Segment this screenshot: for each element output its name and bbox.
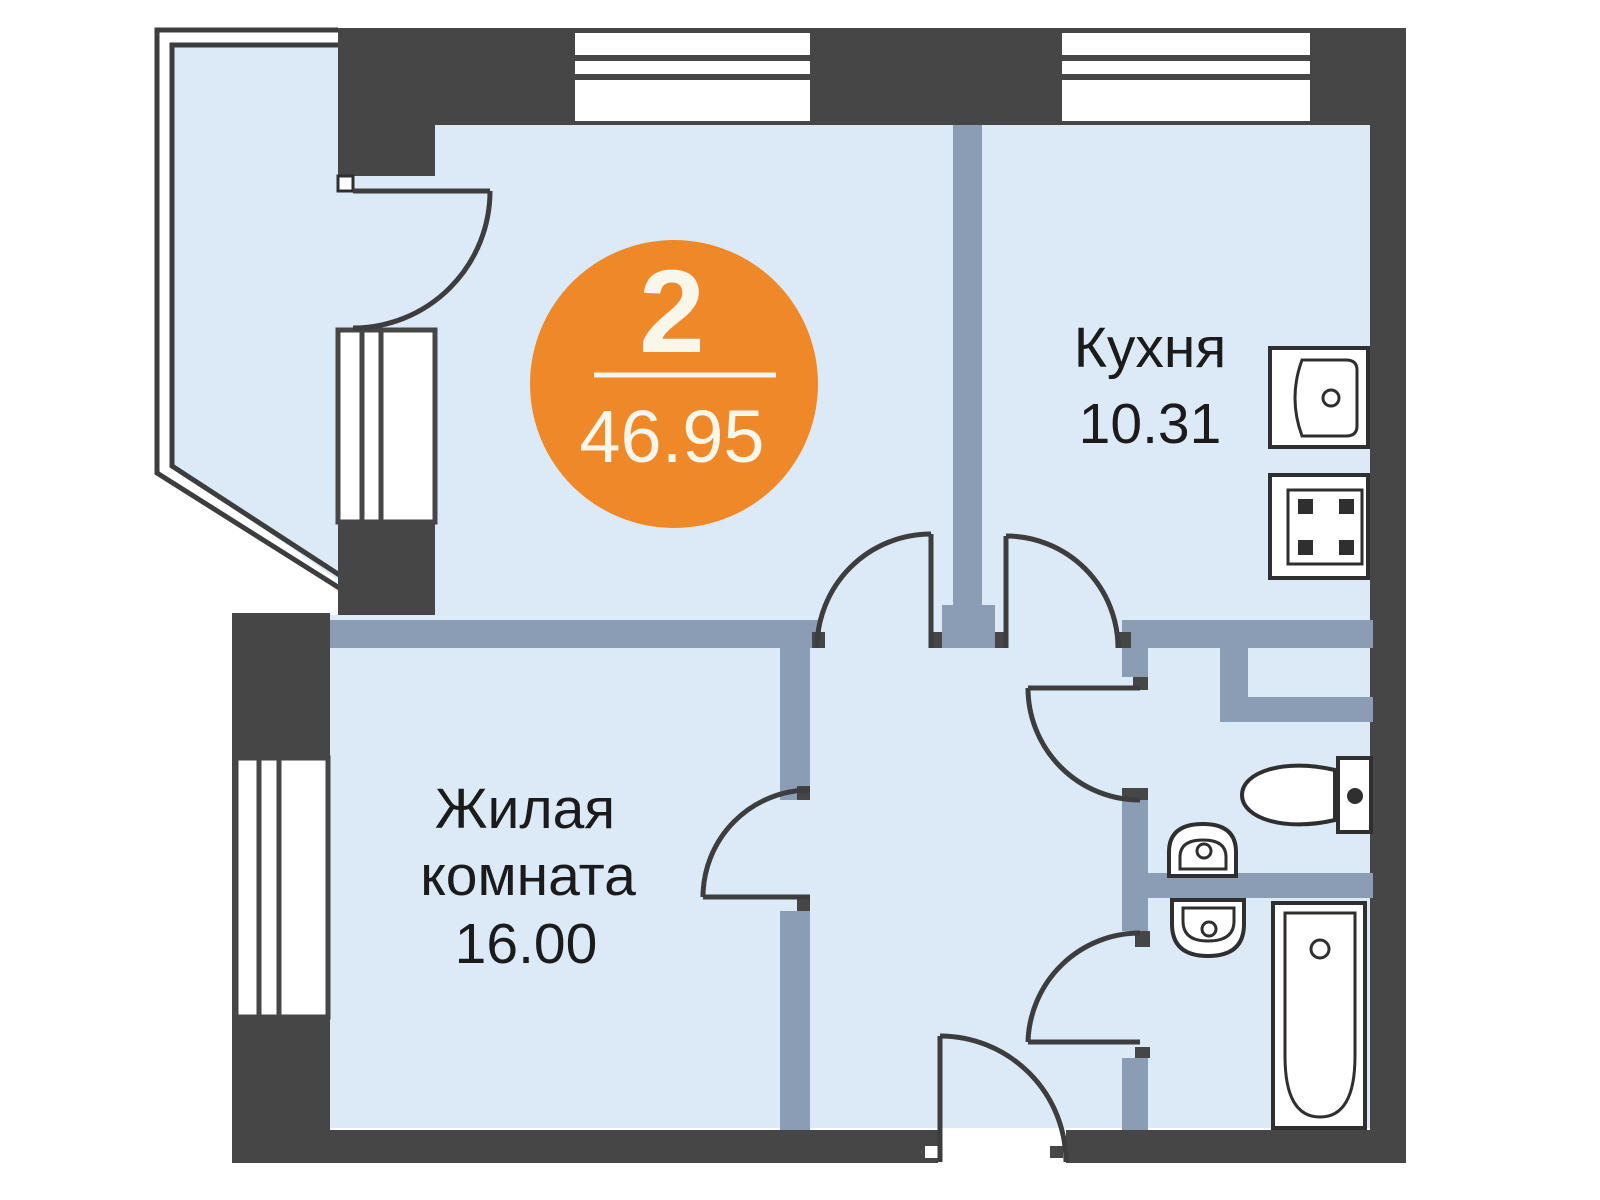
kitchen-label: Кухня bbox=[1074, 316, 1227, 380]
bathtub bbox=[1273, 903, 1365, 1128]
washbasin-wc bbox=[1169, 824, 1236, 876]
shaft-wall-vertical bbox=[1220, 648, 1248, 722]
floor-plan: 2 46.95 Кухня 10.31 Жилая комната 16.00 bbox=[0, 0, 1600, 1200]
washbasin-bath bbox=[1172, 900, 1244, 956]
hall-bath-wall-c bbox=[1122, 1058, 1148, 1130]
apartment-badge: 2 46.95 bbox=[530, 240, 818, 528]
badge-rooms-count: 2 bbox=[639, 246, 705, 378]
window-top-right bbox=[1062, 33, 1310, 121]
right-wall bbox=[1370, 28, 1406, 1163]
living-room-area-value: 16.00 bbox=[455, 912, 598, 976]
living-side-wall-top bbox=[780, 648, 810, 800]
bottom-wall-left bbox=[232, 1130, 938, 1163]
window-left bbox=[236, 758, 328, 1017]
entrance-jamb-right bbox=[1050, 1146, 1063, 1158]
bottom-wall-right bbox=[1066, 1130, 1406, 1163]
stove bbox=[1270, 475, 1368, 578]
shaft-wall-horizontal bbox=[1248, 697, 1373, 722]
hall-bath-wall-a bbox=[1122, 620, 1148, 677]
living-side-wall-bottom bbox=[780, 911, 810, 1130]
living-room-label-line1: Жилая bbox=[435, 777, 615, 841]
badge-total-area: 46.95 bbox=[579, 395, 764, 478]
entrance-jamb-left bbox=[925, 1146, 938, 1158]
toilet-flush-dot bbox=[1347, 788, 1363, 804]
window-balcony bbox=[338, 330, 435, 522]
living-hall-wall bbox=[330, 620, 821, 648]
kitchen-divider-wall bbox=[953, 125, 982, 605]
window-top-left bbox=[575, 33, 810, 121]
kitchen-area-value: 10.31 bbox=[1079, 392, 1222, 456]
balcony-door-jamb bbox=[338, 176, 353, 191]
jamb bbox=[1135, 1047, 1150, 1058]
living-room-label-line2: комната bbox=[420, 844, 636, 908]
kitchen-sink bbox=[1270, 348, 1368, 447]
hall-wc-top-wall bbox=[1131, 620, 1373, 648]
jamb bbox=[797, 898, 810, 911]
balcony-wall-block bbox=[338, 125, 435, 176]
kitchen-divider-foot bbox=[942, 605, 995, 648]
floor-plan-page: 2 46.95 Кухня 10.31 Жилая комната 16.00 bbox=[0, 0, 1600, 1200]
balcony-window-sill bbox=[338, 522, 435, 615]
hall-bath-wall-b bbox=[1122, 800, 1148, 931]
